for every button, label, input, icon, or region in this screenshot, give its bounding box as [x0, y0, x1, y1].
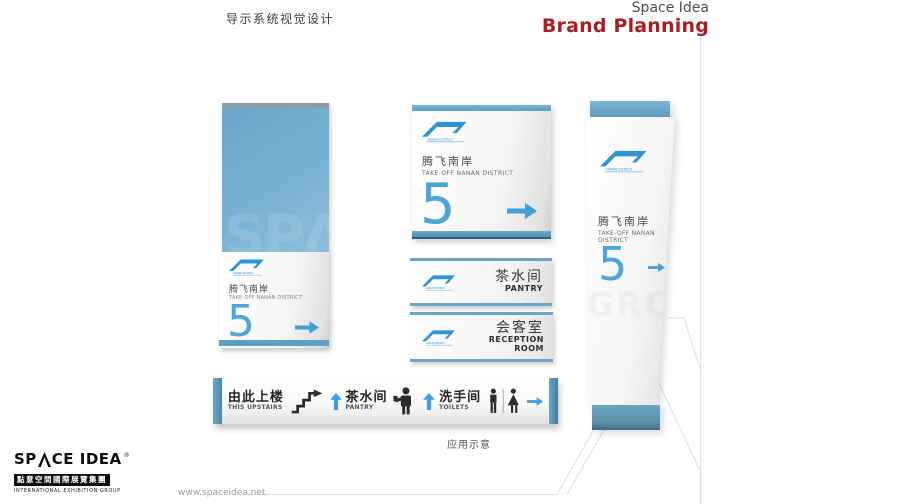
item-label-en: PANTRY [345, 405, 387, 411]
left-district-sign: NANAN DISTRICT 腾飞南岸 TAKE-OFF NANAN DISTR… [219, 252, 329, 348]
logo-text-rest: CE IDEA [52, 452, 122, 467]
blue-panel-sign: SPΛ [222, 103, 329, 253]
right-arrow-icon [295, 321, 319, 334]
panel-watermark: SPΛ [224, 202, 329, 253]
logo-text-sp: SP [14, 452, 37, 467]
pylon-sign: GROUP NANAN DISTRICT 腾飞南岸 TAKE-OFF NANAN… [586, 101, 675, 431]
item-label-cn: 由此上楼 [228, 391, 284, 405]
registered-mark: ® [124, 452, 130, 459]
directory-item-upstairs: 由此上楼 THIS UPSTAIRS [228, 388, 342, 414]
brand-block: Space Idea Brand Planning [542, 0, 709, 38]
brand-tagline: Brand Planning [542, 16, 709, 38]
company-name-cn: 點意空間國際展覽集團 [14, 474, 110, 486]
item-label-en: TOILETS [439, 405, 481, 411]
svg-text:NANAN DISTRICT: NANAN DISTRICT [426, 287, 445, 290]
right-arrow-icon [507, 203, 537, 219]
room-name-en: PANTRY [495, 285, 543, 294]
blue-panel-cap [222, 103, 329, 108]
nanan-logo-icon: NANAN DISTRICT [229, 258, 265, 276]
item-label-cn: 洗手间 [439, 391, 481, 405]
room-sign-bottom-line [410, 303, 552, 306]
company-name-en: INTERNATIONAL EXHIBITION GROUP [14, 488, 130, 494]
mens-womens-icon [487, 388, 521, 414]
website-link[interactable]: www.spaceidea.net [178, 488, 265, 498]
floor-number: 5 [598, 241, 627, 287]
district-name-cn: 腾飞南岸 [422, 153, 474, 169]
pylon-top-cap [590, 101, 670, 119]
pylon-base [592, 405, 660, 430]
nanan-logo-icon: NANAN DISTRICT [422, 274, 456, 291]
logo-triangle-icon [37, 452, 52, 467]
up-arrow-icon [423, 393, 435, 410]
svg-text:NANAN DISTRICT: NANAN DISTRICT [426, 342, 445, 345]
presentation-page: 导示系统视觉设计 Space Idea Brand Planning SPΛ N… [0, 0, 899, 504]
stairs-icon [290, 388, 324, 414]
company-logo: SP CE IDEA ® 點意空間國際展覽集團 INTERNATIONAL EX… [14, 452, 130, 494]
pantry-sign: NANAN DISTRICT 茶水间 PANTRY [410, 258, 552, 306]
directory-item-toilets: 洗手间 TOILETS [439, 388, 543, 414]
directory-item-pantry: 茶水间 PANTRY [345, 387, 435, 415]
svg-text:NANAN DISTRICT: NANAN DISTRICT [606, 167, 632, 171]
main-district-sign: NANAN DISTRICT 腾飞南岸 TAKE-OFF NANAN DISTR… [412, 105, 551, 239]
main-sign-bottom-bar [412, 231, 551, 239]
guide-lines [0, 0, 899, 504]
pylon-body: GROUP NANAN DISTRICT 腾飞南岸 TAKE-OFF NANAN… [586, 117, 675, 405]
main-sign-face: NANAN DISTRICT 腾飞南岸 TAKE-OFF NANAN DISTR… [412, 111, 551, 233]
directory-right-cap [549, 378, 558, 424]
page-title: 导示系统视觉设计 [226, 10, 334, 27]
right-arrow-icon [527, 397, 543, 406]
room-name-cn: 茶水间 [495, 270, 543, 285]
district-name-cn: 腾飞南岸 [229, 282, 269, 295]
directory-face: 由此上楼 THIS UPSTAIRS 茶水间 [222, 378, 549, 424]
nanan-logo-icon: NANAN DISTRICT [422, 329, 456, 346]
nanan-logo-icon: NANAN DISTRICT [422, 120, 468, 143]
floor-number: 5 [420, 177, 456, 233]
district-name-cn: 腾飞南岸 [598, 213, 650, 229]
svg-text:NANAN DISTRICT: NANAN DISTRICT [234, 272, 254, 275]
directory-sign: 由此上楼 THIS UPSTAIRS 茶水间 [213, 378, 558, 424]
person-cup-icon [393, 387, 417, 415]
room-sign-bottom-line [410, 359, 553, 362]
brand-name: Space Idea [542, 0, 709, 16]
left-sign-blue-strip [219, 340, 329, 346]
room-name-cn: 会客室 [456, 321, 544, 336]
floor-number: 5 [227, 300, 255, 344]
right-arrow-icon [648, 263, 665, 272]
pylon-ghost-watermark: GROUP [586, 285, 675, 325]
nanan-logo-icon: NANAN DISTRICT [600, 149, 648, 173]
application-caption: 应用示意 [447, 436, 491, 451]
item-label-en: THIS UPSTAIRS [228, 405, 284, 411]
reception-sign: NANAN DISTRICT 会客室 RECEPTION ROOM [410, 312, 553, 362]
item-label-cn: 茶水间 [345, 391, 387, 405]
room-name-en: RECEPTION ROOM [456, 336, 544, 354]
svg-text:NANAN DISTRICT: NANAN DISTRICT [428, 137, 453, 141]
up-arrow-icon [330, 393, 342, 410]
directory-left-cap [213, 378, 222, 424]
